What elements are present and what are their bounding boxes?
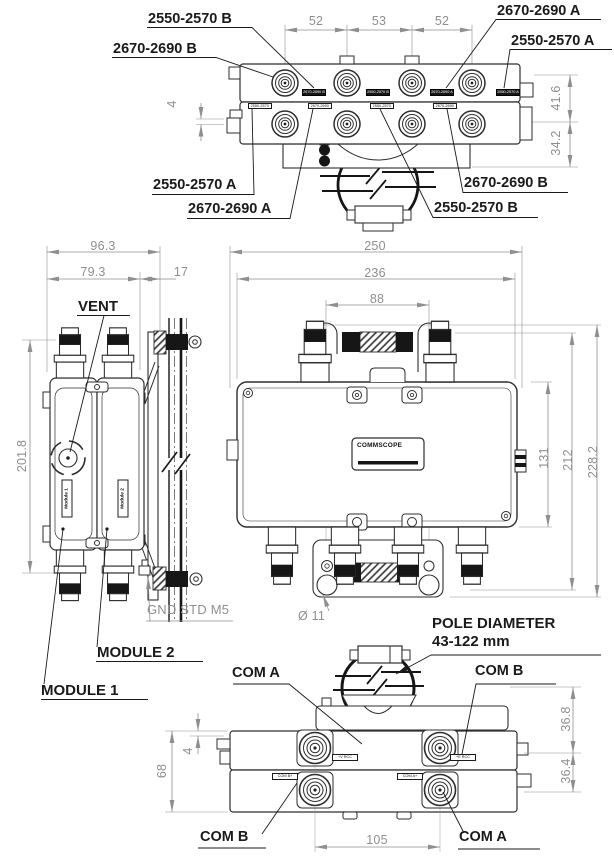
port-label: +V RCC [332, 754, 358, 762]
dim-52-left: 52 [291, 14, 341, 28]
callout-2670-2690-b-top: 2670-2690 B [113, 42, 197, 57]
front-view-drawing [227, 246, 601, 611]
port-label: +E RCC [450, 754, 476, 762]
module-1-tag: Module 1 [61, 479, 72, 517]
callout-module-2: MODULE 2 [97, 645, 175, 660]
callout-2550-2570-b-bottom: 2550-2570 B [434, 201, 518, 216]
dim-212: 212 [561, 445, 575, 475]
callout-com-b-top: COM B [475, 664, 523, 679]
dim-201-8: 201.8 [15, 433, 29, 479]
drawing-linework [0, 0, 614, 861]
callout-module-1: MODULE 1 [41, 683, 119, 698]
dim-68: 68 [155, 759, 169, 783]
callout-2670-2690-a-top: 2670-2690 A [497, 4, 580, 19]
port-label: 2550-2570 B [370, 103, 394, 110]
port-label: COM A+ [397, 773, 423, 781]
side-view-drawing [22, 246, 233, 700]
dim-4-top: 4 [165, 94, 179, 114]
callout-com-b-bottom: COM B [200, 830, 248, 845]
dim-hole-11: Ø 11 [298, 609, 325, 623]
vent-label: VENT [78, 299, 118, 314]
dim-36-8: 36.8 [559, 703, 573, 735]
port-label: 2670-2690 B [302, 89, 326, 96]
port-label: 2550-2570 B [366, 89, 390, 96]
dim-34-2: 34.2 [549, 123, 563, 163]
dim-53: 53 [354, 14, 404, 28]
dim-17: 17 [161, 265, 201, 279]
dim-228-2: 228.2 [586, 440, 600, 484]
callout-2670-2690-a-bottom: 2670-2690 A [188, 202, 271, 217]
port-label: COM B+ [272, 773, 298, 781]
gnd-label: GND STD M5 [147, 603, 229, 617]
dim-36-4: 36.4 [559, 755, 573, 787]
pole-diameter-label: POLE DIAMETER [432, 616, 555, 631]
dim-79-3: 79.3 [63, 265, 123, 279]
callout-com-a-top: COM A [232, 666, 280, 681]
dim-131: 131 [537, 443, 551, 473]
module-2-tag: Module 2 [118, 479, 129, 517]
callout-2550-2570-a-bottom: 2550-2570 A [153, 178, 236, 193]
dim-105: 105 [352, 833, 402, 847]
dim-41-6: 41.6 [549, 78, 563, 118]
pole-diameter-range: 43-122 mm [432, 634, 510, 649]
dim-250: 250 [350, 239, 400, 253]
dim-88: 88 [352, 292, 402, 306]
dim-236: 236 [350, 266, 400, 280]
port-label: 2550-2570 A [248, 103, 272, 110]
callout-2550-2570-b-top: 2550-2570 B [148, 12, 232, 27]
commscope-logo: COMMSCOPE [357, 442, 402, 449]
bottom-view-drawing [165, 646, 601, 852]
dim-96-3: 96.3 [73, 239, 133, 253]
port-label: 2670-2690 B [433, 103, 457, 110]
dim-4-bottom: 4 [181, 741, 195, 761]
port-label: 2670-2690 A [308, 103, 332, 110]
callout-2550-2570-a-top: 2550-2570 A [511, 34, 594, 49]
callout-com-a-bottom: COM A [459, 830, 507, 845]
dim-52-right: 52 [417, 14, 467, 28]
port-label: 2550-2570 A [496, 89, 520, 96]
technical-drawing-page: 52 53 52 41.6 34.2 4 2550-2570 B 2670-26… [0, 0, 614, 861]
port-label: 2670-2690 A [430, 89, 454, 96]
callout-2670-2690-b-bottom: 2670-2690 B [464, 176, 548, 191]
